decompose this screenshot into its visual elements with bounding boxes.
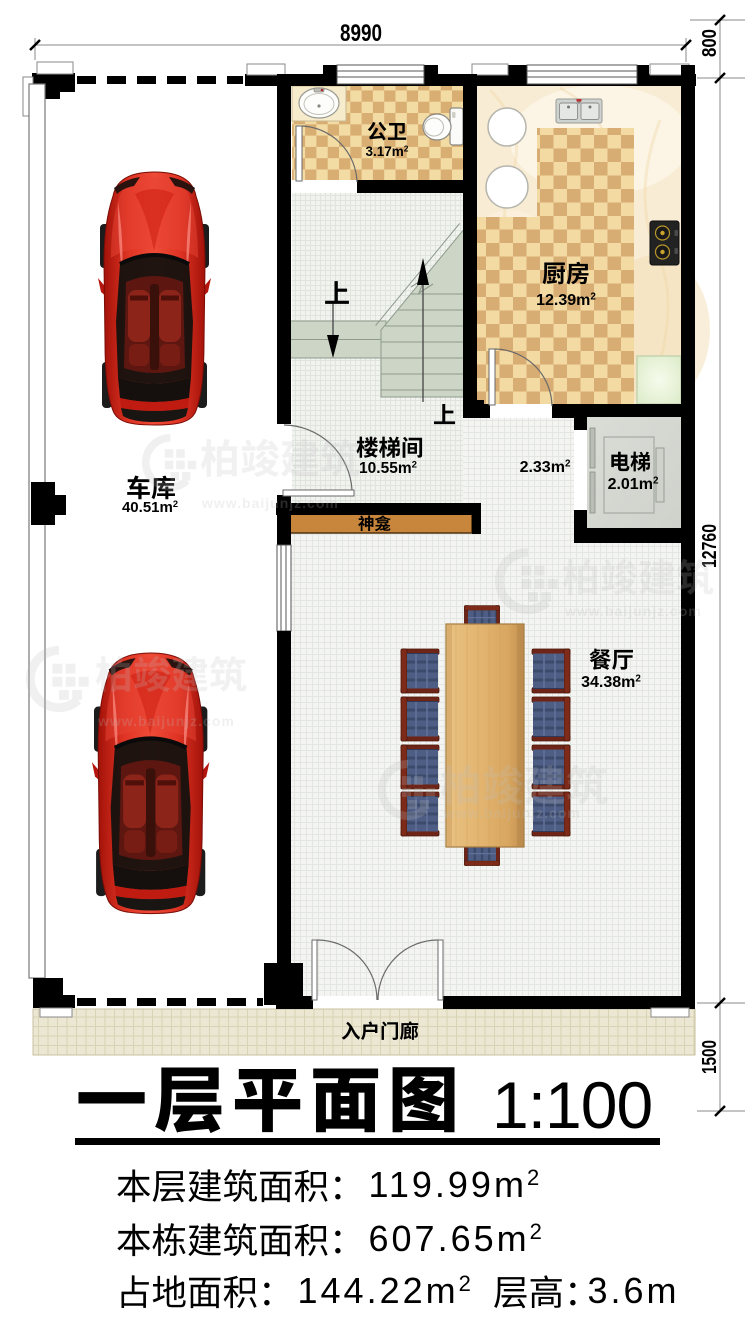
svg-text:www.baijunjz.com: www.baijunjz.com — [443, 805, 581, 821]
svg-text:40.51m2: 40.51m2 — [122, 499, 178, 516]
svg-text:1:100: 1:100 — [492, 1068, 652, 1142]
svg-text:800: 800 — [699, 29, 721, 57]
svg-text:3.17m2: 3.17m2 — [366, 143, 409, 159]
svg-text:8990: 8990 — [340, 20, 382, 47]
svg-text:www.baijunjz.com: www.baijunjz.com — [97, 713, 235, 729]
svg-text:144.22m2: 144.22m2 — [298, 1270, 474, 1311]
svg-text:3.6m: 3.6m — [588, 1270, 680, 1311]
svg-text:607.65m2: 607.65m2 — [369, 1218, 545, 1259]
svg-text:10.55m2: 10.55m2 — [359, 460, 417, 477]
svg-text:www.baijunjz.com: www.baijunjz.com — [201, 495, 339, 511]
svg-text:2.33m2: 2.33m2 — [520, 458, 571, 476]
svg-text:119.99m2: 119.99m2 — [369, 1164, 543, 1205]
svg-text:www.baijunjz.com: www.baijunjz.com — [564, 603, 702, 619]
svg-text:34.38m2: 34.38m2 — [581, 673, 641, 691]
svg-text:2.01m2: 2.01m2 — [608, 475, 659, 493]
svg-text:12.39m2: 12.39m2 — [536, 291, 596, 309]
svg-text:1500: 1500 — [699, 1040, 721, 1074]
